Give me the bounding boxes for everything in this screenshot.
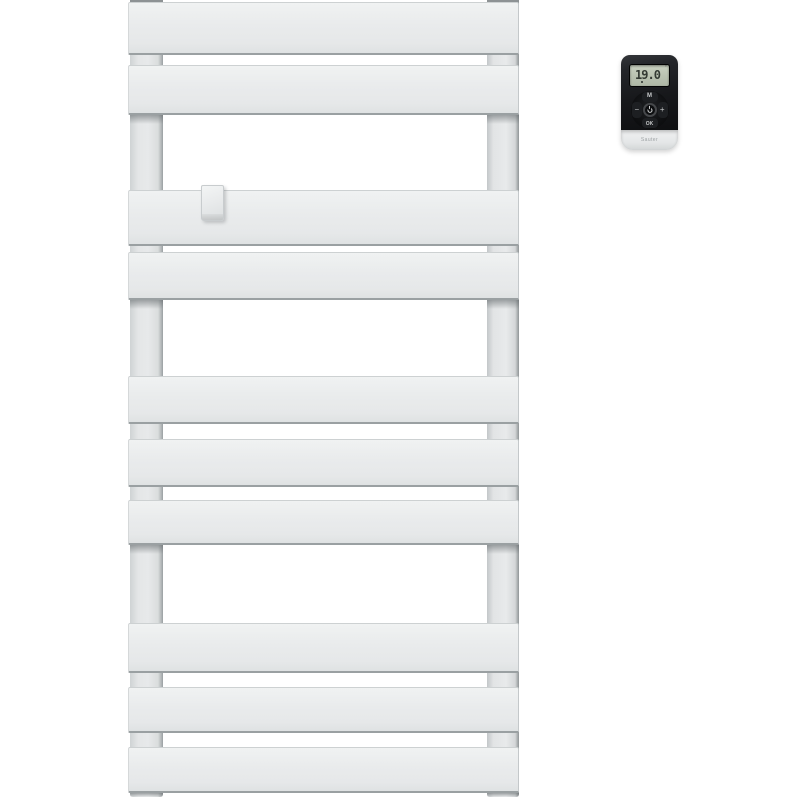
brand-label: Sauter: [621, 130, 678, 150]
rail-shadow: [130, 793, 163, 797]
rail-shadow: [487, 300, 519, 309]
power-button: [643, 103, 657, 117]
rail-shadow: [487, 545, 519, 554]
remote-dpad: M − + OK: [631, 91, 669, 129]
power-icon: [647, 108, 652, 113]
remote-body: 19.0 ° M − + OK: [621, 55, 678, 130]
remote-base: Sauter: [621, 130, 678, 150]
degree-symbol: °: [665, 65, 667, 71]
towel-hook: [201, 185, 224, 221]
product-image-canvas: 19.0 ° M − + OK Sauter: [0, 0, 800, 800]
radiator-panel-6: [128, 439, 519, 487]
mode-button-label: M: [631, 93, 669, 99]
ok-button-label: OK: [631, 121, 669, 127]
radiator-panel-10: [128, 747, 519, 793]
radiator-panel-4: [128, 252, 519, 300]
plus-button-label: +: [660, 106, 665, 114]
temperature-value: 19.0: [630, 68, 665, 82]
rail-shadow: [130, 115, 163, 124]
radiator-panel-9: [128, 687, 519, 733]
radiator-panel-7: [128, 500, 519, 545]
radiator-panel-2: [128, 65, 519, 115]
remote-display: 19.0 °: [630, 65, 669, 86]
minus-button-label: −: [635, 106, 640, 114]
radiator-panel-5: [128, 376, 519, 424]
rail-shadow: [130, 300, 163, 309]
radiator-panel-1: [128, 2, 519, 55]
rail-shadow: [130, 545, 163, 554]
radiator-panel-8: [128, 623, 519, 673]
rail-shadow: [487, 115, 519, 124]
rail-shadow: [487, 793, 519, 797]
lcd-indicator-dot: [641, 81, 643, 83]
radiator-panel-3: [128, 190, 519, 246]
remote-thermostat: 19.0 ° M − + OK Sauter: [621, 55, 678, 150]
